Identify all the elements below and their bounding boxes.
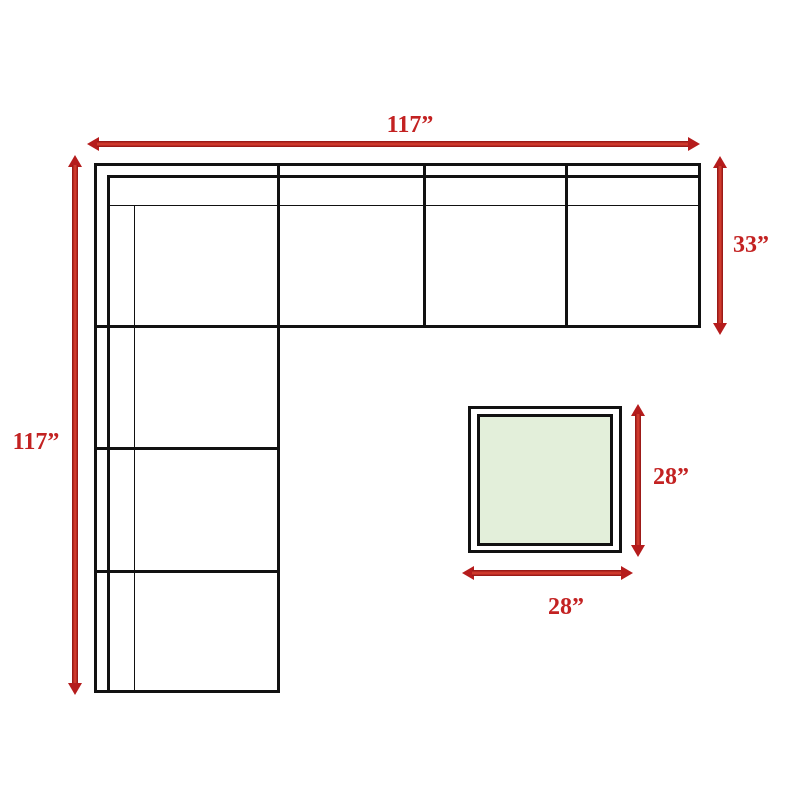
sofa-height-label: 117” bbox=[0, 429, 72, 455]
sofa-cushion-top-thin-line bbox=[110, 205, 698, 206]
sofa-outer-top-line bbox=[94, 163, 701, 166]
sofa-top-arm-divider-1 bbox=[423, 163, 426, 328]
arrow-shaft bbox=[472, 570, 623, 576]
ottoman-width-label: 28” bbox=[531, 594, 601, 620]
sofa-left-arm-divider-1 bbox=[94, 447, 280, 450]
arrow-head-down-icon bbox=[713, 323, 727, 335]
sofa-arm-depth-label: 33” bbox=[716, 232, 786, 258]
ottoman-top-surface bbox=[477, 414, 613, 546]
sofa-height-arrow bbox=[68, 155, 82, 695]
arrow-head-right-icon bbox=[621, 566, 633, 580]
sofa-outer-left-line bbox=[94, 163, 97, 693]
arrow-head-right-icon bbox=[688, 137, 700, 151]
sofa-width-arrow bbox=[87, 137, 700, 151]
ottoman-width-arrow bbox=[462, 566, 633, 580]
arrow-shaft bbox=[72, 165, 78, 685]
sofa-left-arm-right-line bbox=[277, 163, 280, 693]
sofa-outer-right-arm-line bbox=[698, 163, 701, 328]
arrow-head-down-icon bbox=[68, 683, 82, 695]
sofa-top-arm-bottom-line bbox=[94, 325, 701, 328]
sofa-width-label: 117” bbox=[360, 112, 460, 138]
sofa-left-arm-divider-2 bbox=[94, 570, 280, 573]
arrow-head-down-icon bbox=[631, 545, 645, 557]
sofa-top-arm-divider-2 bbox=[565, 163, 568, 328]
sofa-cushion-left-thin-line bbox=[134, 205, 135, 693]
sofa-backrest-top-line bbox=[107, 175, 701, 178]
arrow-shaft bbox=[97, 141, 690, 147]
dimension-diagram: 117” 117” 33” 28” 28” bbox=[0, 0, 800, 800]
sofa-backrest-left-line bbox=[107, 175, 110, 693]
sofa-outer-bottom-line bbox=[94, 690, 280, 693]
ottoman-height-label: 28” bbox=[636, 464, 706, 490]
